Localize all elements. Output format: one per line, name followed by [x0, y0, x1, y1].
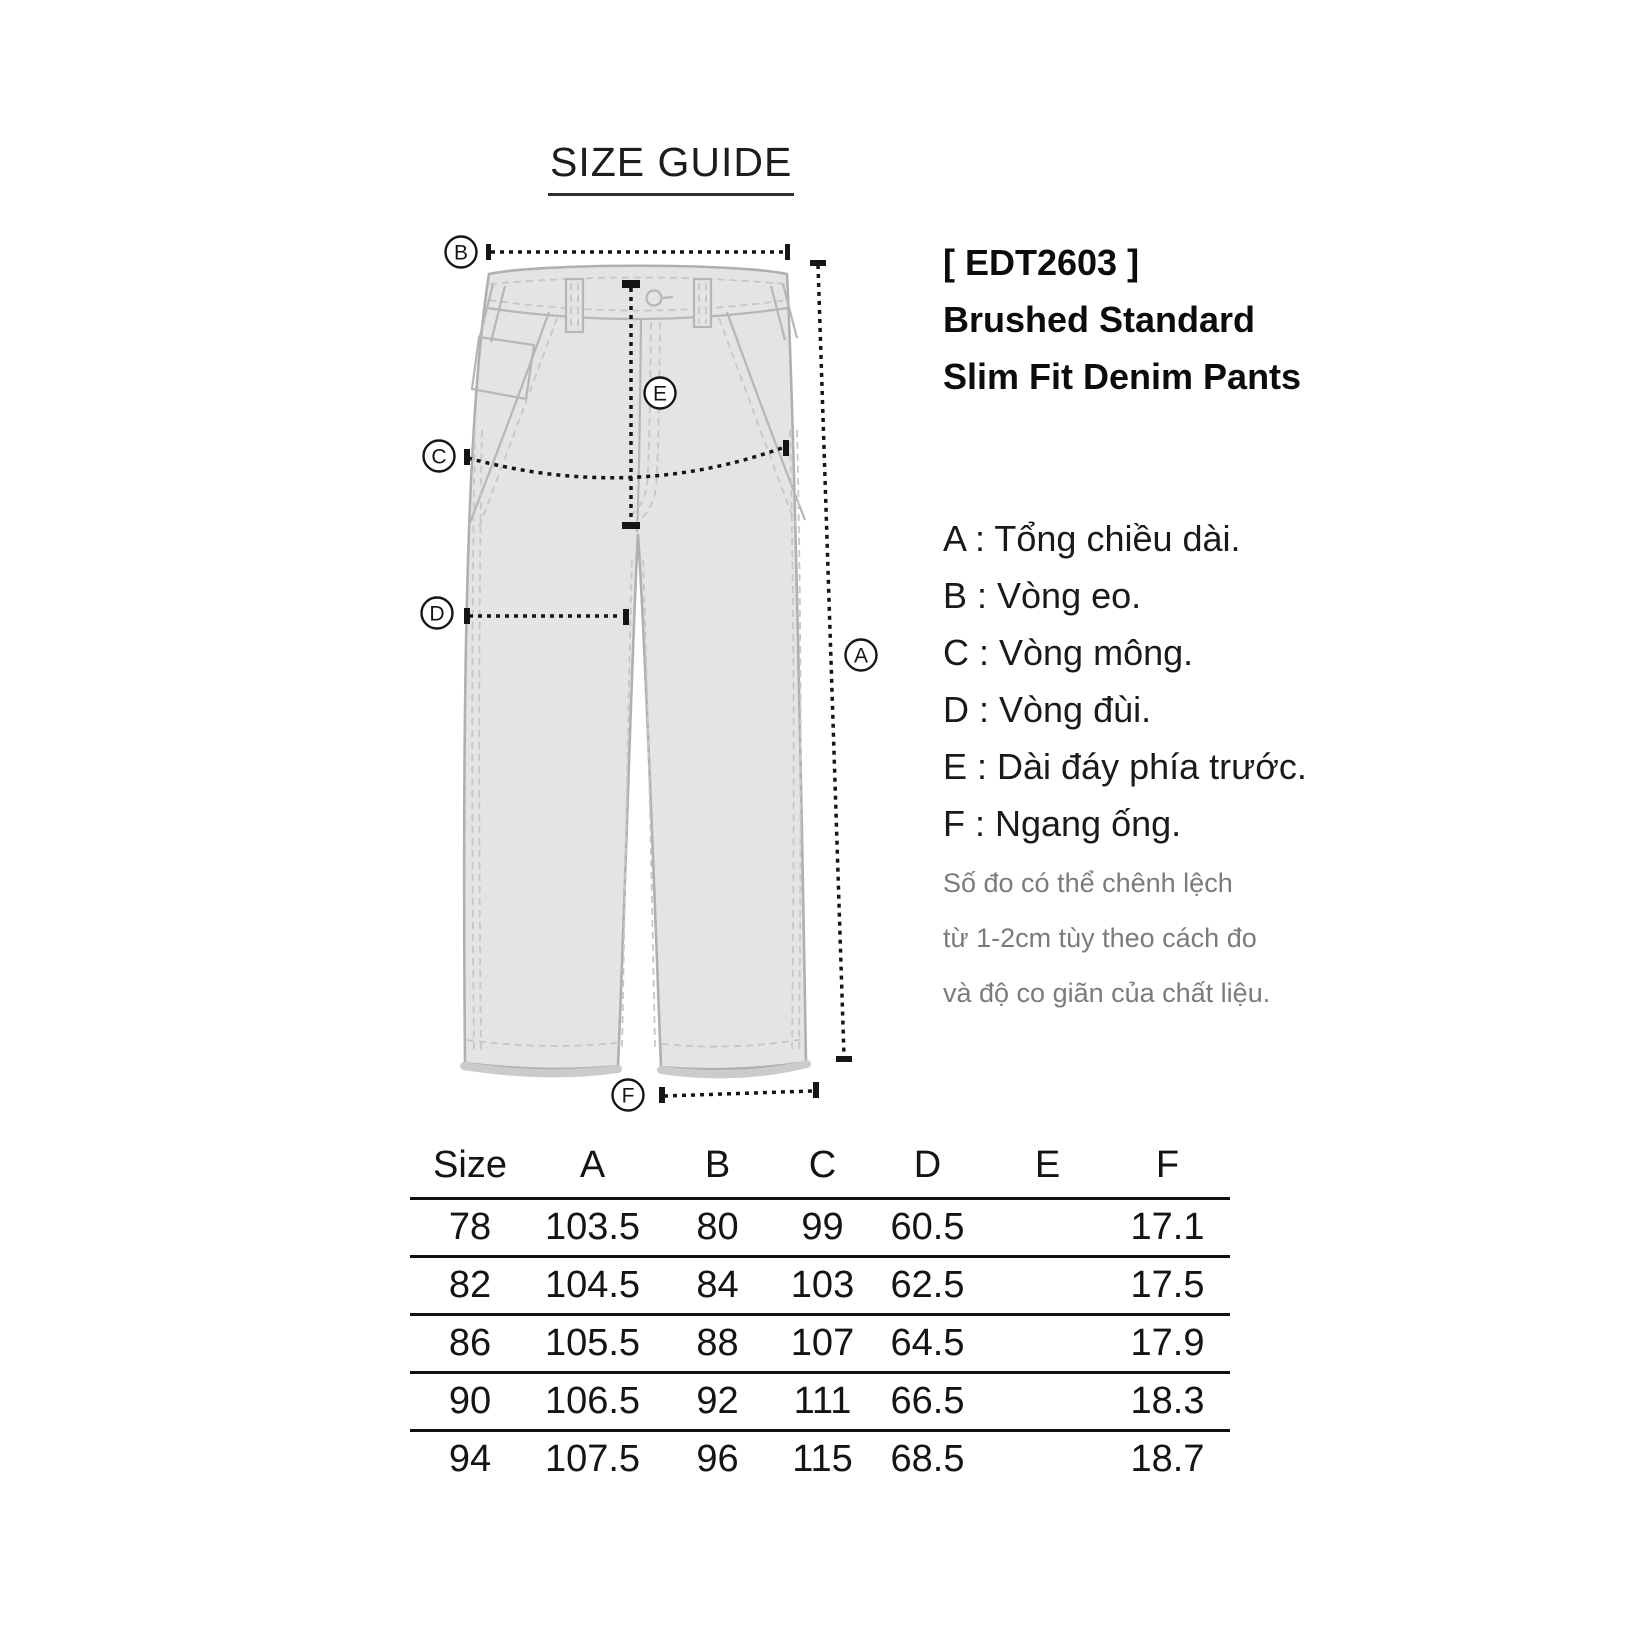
table-header-cell: Size — [410, 1133, 530, 1197]
table-cell: 17.1 — [1105, 1200, 1230, 1255]
table-cell: 96 — [655, 1432, 780, 1487]
table-cell: 103 — [780, 1258, 865, 1313]
marker-a-label: A — [854, 645, 868, 668]
legend-item-a: A : Tổng chiều dài. — [943, 510, 1307, 567]
pants-diagram: B E C D A F — [410, 230, 880, 1120]
size-guide-page: SIZE GUIDE [ EDT2603 ] Brushed Standard … — [0, 0, 1646, 1646]
table-cell: 103.5 — [530, 1200, 655, 1255]
table-cell: 17.9 — [1105, 1316, 1230, 1371]
product-name-line2: Slim Fit Denim Pants — [943, 348, 1301, 405]
table-cell — [990, 1200, 1105, 1255]
table-cell: 115 — [780, 1432, 865, 1487]
table-header-cell: C — [780, 1133, 865, 1197]
table-row: 90 106.5 92 111 66.5 18.3 — [410, 1374, 1230, 1432]
table-cell: 66.5 — [865, 1374, 990, 1429]
belt-loop — [566, 279, 583, 332]
table-header-cell: A — [530, 1133, 655, 1197]
measurement-legend: A : Tổng chiều dài. B : Vòng eo. C : Vòn… — [943, 510, 1307, 852]
table-cell: 64.5 — [865, 1316, 990, 1371]
table-cell: 104.5 — [530, 1258, 655, 1313]
note-line: Số đo có thể chênh lệch — [943, 856, 1270, 911]
table-cell — [990, 1432, 1105, 1487]
marker-e: E — [645, 378, 676, 409]
table-row: 94 107.5 96 115 68.5 18.7 — [410, 1432, 1230, 1487]
table-cell — [990, 1258, 1105, 1313]
table-cell: 60.5 — [865, 1200, 990, 1255]
marker-b-label: B — [454, 242, 468, 265]
table-header-cell: B — [655, 1133, 780, 1197]
page-title: SIZE GUIDE — [548, 139, 794, 196]
table-cell: 68.5 — [865, 1432, 990, 1487]
table-cell: 82 — [410, 1258, 530, 1313]
marker-b: B — [446, 237, 477, 268]
table-cell: 18.3 — [1105, 1374, 1230, 1429]
product-code: [ EDT2603 ] — [943, 234, 1301, 291]
marker-f-label: F — [622, 1085, 635, 1108]
table-cell — [990, 1316, 1105, 1371]
pants-drawing — [464, 266, 807, 1075]
table-cell: 78 — [410, 1200, 530, 1255]
note-line: và độ co giãn của chất liệu. — [943, 966, 1270, 1021]
table-cell: 105.5 — [530, 1316, 655, 1371]
table-cell: 90 — [410, 1374, 530, 1429]
size-table: Size A B C D E F 78 103.5 80 99 60.5 17.… — [410, 1133, 1230, 1487]
product-name-line1: Brushed Standard — [943, 291, 1301, 348]
note-line: từ 1-2cm tùy theo cách đo — [943, 911, 1270, 966]
legend-item-f: F : Ngang ống. — [943, 795, 1307, 852]
table-cell: 84 — [655, 1258, 780, 1313]
legend-item-c: C : Vòng mông. — [943, 624, 1307, 681]
marker-f: F — [613, 1080, 644, 1111]
legend-item-e: E : Dài đáy phía trước. — [943, 738, 1307, 795]
table-cell: 111 — [780, 1374, 865, 1429]
table-cell: 18.7 — [1105, 1432, 1230, 1487]
marker-c-label: C — [431, 446, 446, 469]
table-row: 82 104.5 84 103 62.5 17.5 — [410, 1258, 1230, 1316]
table-header-cell: D — [865, 1133, 990, 1197]
table-header-cell: F — [1105, 1133, 1230, 1197]
table-row: 78 103.5 80 99 60.5 17.1 — [410, 1200, 1230, 1258]
table-cell: 62.5 — [865, 1258, 990, 1313]
table-row: 86 105.5 88 107 64.5 17.9 — [410, 1316, 1230, 1374]
table-cell: 88 — [655, 1316, 780, 1371]
marker-a: A — [846, 640, 877, 671]
table-header-cell: E — [990, 1133, 1105, 1197]
table-cell: 86 — [410, 1316, 530, 1371]
marker-e-label: E — [653, 383, 667, 406]
product-info: [ EDT2603 ] Brushed Standard Slim Fit De… — [943, 234, 1301, 405]
legend-item-b: B : Vòng eo. — [943, 567, 1307, 624]
legend-item-d: D : Vòng đùi. — [943, 681, 1307, 738]
belt-loop — [694, 279, 711, 327]
table-cell: 17.5 — [1105, 1258, 1230, 1313]
marker-d: D — [422, 598, 453, 629]
table-cell: 107.5 — [530, 1432, 655, 1487]
marker-d-label: D — [429, 603, 444, 626]
table-cell: 99 — [780, 1200, 865, 1255]
table-header-row: Size A B C D E F — [410, 1133, 1230, 1200]
table-cell: 107 — [780, 1316, 865, 1371]
table-cell: 106.5 — [530, 1374, 655, 1429]
table-cell: 80 — [655, 1200, 780, 1255]
marker-c: C — [424, 441, 455, 472]
table-cell — [990, 1374, 1105, 1429]
table-cell: 94 — [410, 1432, 530, 1487]
table-cell: 92 — [655, 1374, 780, 1429]
disclaimer-note: Số đo có thể chênh lệch từ 1-2cm tùy the… — [943, 856, 1270, 1021]
